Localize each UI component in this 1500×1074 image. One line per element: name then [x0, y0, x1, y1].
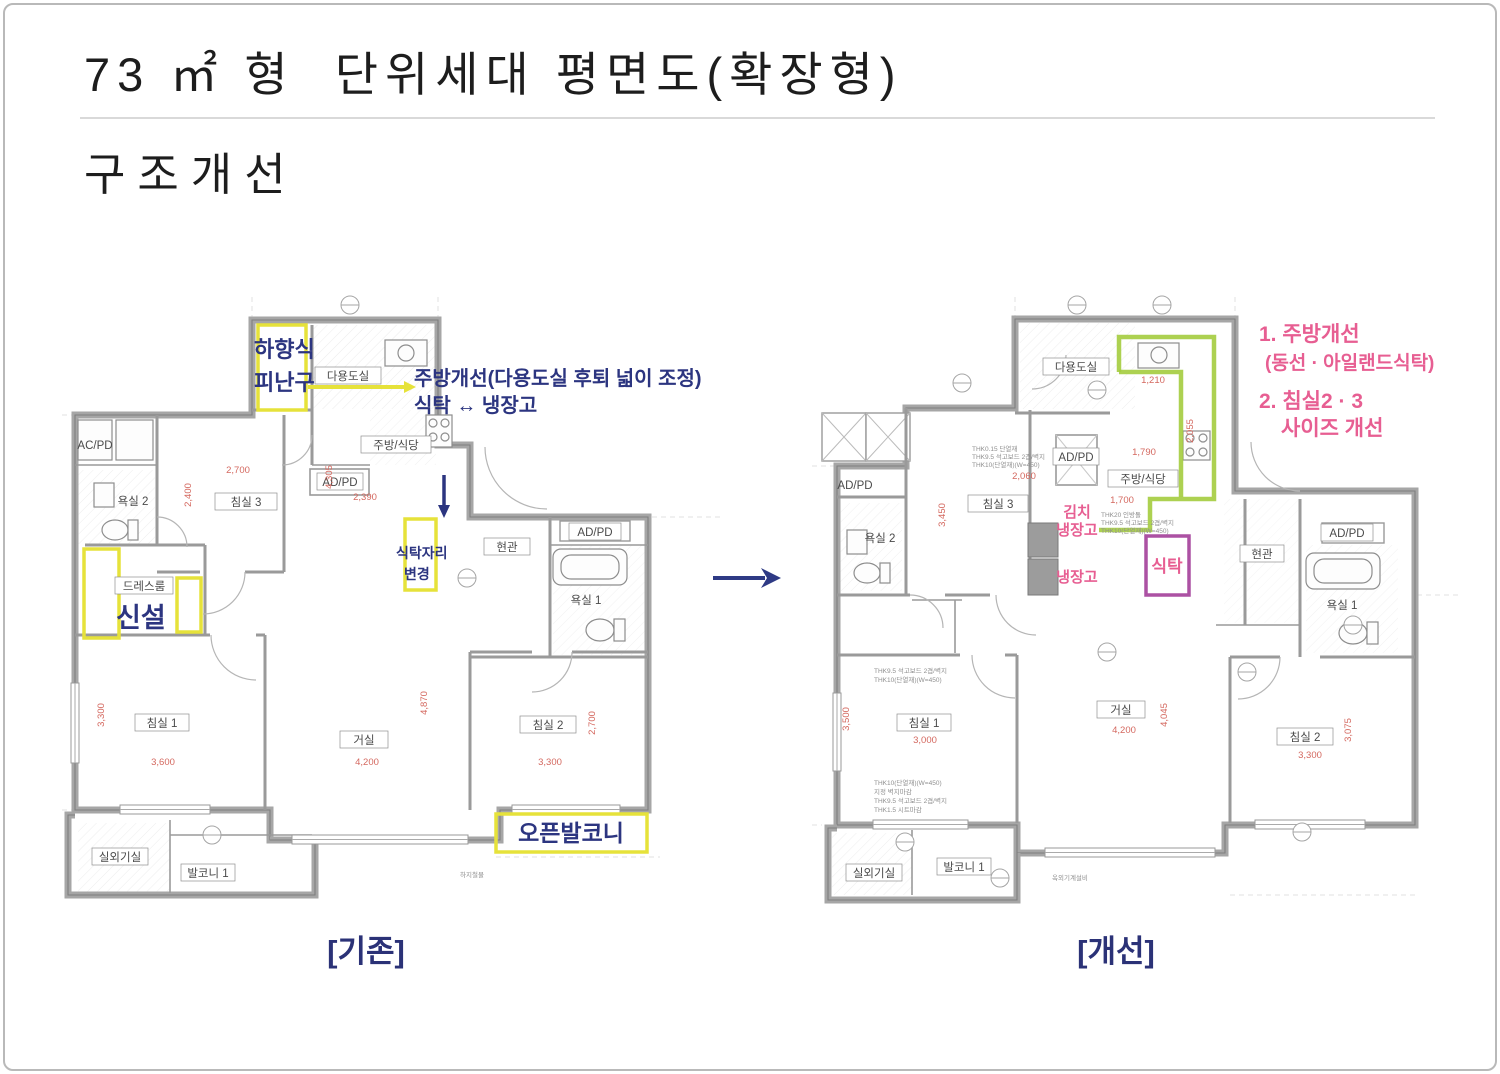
svg-text:욕실 2: 욕실 2 [865, 532, 896, 545]
dimension-label: 3,600 [151, 757, 175, 768]
circle-marker [953, 374, 971, 392]
dimension-label: 3,000 [913, 735, 937, 746]
svg-text:욕실 2: 욕실 2 [118, 495, 149, 508]
svg-text:침실 3: 침실 3 [231, 496, 262, 509]
room-label: 욕실 1 [1327, 599, 1358, 612]
circle-marker [896, 833, 914, 851]
circle-marker [1293, 823, 1311, 841]
label-fridge: 냉장고 [1056, 568, 1098, 586]
dimension-label: 2,060 [1012, 471, 1036, 482]
dimension-label: 3,300 [1298, 750, 1322, 761]
dimension-label: 1,700 [1110, 495, 1134, 506]
svg-text:AC/PD: AC/PD [77, 440, 112, 452]
svg-text:침실 1: 침실 1 [147, 717, 178, 730]
floor-plan-improved: 1. 주방개선 (동선 · 아일랜드식탁) 2. 침실2 · 3 사이즈 개선 … [810, 295, 1470, 920]
tiny-note: THK9.5 석고보드 2겹/벽지 [1101, 518, 1174, 527]
dimension-label: 3,075 [1343, 718, 1354, 742]
svg-text:욕실 1: 욕실 1 [571, 594, 602, 607]
room-label: 욕실 1 [571, 594, 602, 607]
tiny-note: THK0.15 단열재 [972, 444, 1017, 453]
svg-text:현관: 현관 [496, 541, 518, 554]
dimension-label: 4,045 [1159, 703, 1170, 727]
room-label: 발코니 1 [937, 858, 991, 875]
room-label: 현관 [484, 538, 530, 555]
tiny-note: 하지철물 [460, 870, 484, 879]
room-label: 침실 2 [1277, 728, 1333, 745]
svg-text:침실 2: 침실 2 [533, 719, 564, 732]
svg-text:현관: 현관 [1251, 548, 1273, 561]
svg-text:침실 3: 침실 3 [983, 498, 1014, 511]
annotation-1-title: 1. 주방개선 [1259, 323, 1360, 346]
dimension-label: 1,210 [1141, 375, 1165, 386]
annotation-escape-hatch-line2: 피난구 [254, 370, 315, 395]
circle-marker [458, 569, 476, 587]
room-label: 다용도실 [315, 367, 381, 384]
label-kimchi-fridge-line2: 냉장고 [1056, 521, 1098, 539]
annotation-new-install: 신설 [116, 603, 166, 633]
room-label: 거실 [340, 731, 388, 748]
svg-text:발코니 1: 발코니 1 [187, 867, 228, 880]
caption-improved: [개선] [1031, 926, 1201, 971]
room-label: 주방/식당 [1108, 470, 1178, 487]
annotation-table-move-line1: 식탁자리 [396, 545, 448, 561]
down-arrow-head [438, 505, 450, 518]
circle-marker [1068, 296, 1086, 314]
caption-existing: [기존] [281, 926, 451, 971]
dimension-label: 2,700 [587, 711, 598, 735]
svg-text:AD/PD: AD/PD [837, 480, 872, 492]
annotation-2-detail: 사이즈 개선 [1281, 417, 1383, 440]
label-dining-table: 식탁 [1151, 557, 1183, 576]
room-label: 욕실 2 [865, 532, 896, 545]
dimension-label: 3,450 [937, 503, 948, 527]
label-kimchi-fridge-line1: 김치 [1063, 503, 1091, 521]
dimension-label: 3,300 [96, 703, 107, 727]
circle-marker [203, 826, 221, 844]
svg-text:발코니 1: 발코니 1 [943, 861, 984, 874]
tiny-note: THK9.5 석고보드 2겹/벽지 [972, 452, 1045, 461]
circle-marker [1344, 616, 1362, 634]
annotation-table-fridge: 식탁 ↔ 냉장고 [414, 394, 537, 417]
slide: 73 ㎡ 형 단위세대 평면도(확장형) 구조개선 [0, 0, 1500, 1074]
room-label: 실외기실 [846, 864, 902, 881]
tiny-note: 옥외기계설비 [1052, 873, 1088, 882]
circle-marker [1088, 381, 1106, 399]
tiny-note: THK10(단열재)(W=450) [1101, 526, 1169, 535]
elevator-core [822, 413, 910, 461]
annotation-kitchen-improve: 주방개선(다용도실 후퇴 넓이 조정) [414, 367, 702, 390]
kimchi-fridge-unit [1028, 523, 1058, 557]
title-divider [80, 117, 1435, 119]
room-label: 침실 1 [897, 714, 951, 731]
room-label: AD/PD [837, 480, 872, 492]
circle-marker [1098, 643, 1116, 661]
dimension-label: 1,790 [1132, 447, 1156, 458]
tiny-note: THK10(단열재)(W=450) [874, 675, 942, 684]
fridge-unit [1028, 559, 1058, 595]
svg-text:욕실 1: 욕실 1 [1327, 599, 1358, 612]
annotation-open-balcony: 오픈발코니 [518, 820, 624, 846]
room-label: 현관 [1240, 545, 1284, 562]
room-label: 침실 1 [135, 714, 189, 731]
svg-text:드레스룸: 드레스룸 [123, 580, 165, 593]
room-label: 거실 [1097, 701, 1145, 718]
svg-text:실외기실: 실외기실 [853, 867, 895, 880]
floor-plan-existing: 하향식 피난구 주방개선(다용도실 후퇴 넓이 조정) 식탁 ↔ 냉장고 신설 … [60, 295, 780, 920]
svg-text:다용도실: 다용도실 [327, 370, 369, 383]
circle-marker [1153, 296, 1171, 314]
dimension-label: 2,700 [226, 465, 250, 476]
tiny-note: THK9.5 석고보드 2겹/벽지 [874, 796, 947, 805]
room-label: 다용도실 [1043, 358, 1109, 375]
room-label: 욕실 2 [118, 495, 149, 508]
tiny-note: THK10(단열재)(W=450) [972, 460, 1040, 469]
room-label: 주방/식당 [361, 436, 431, 453]
room-label: AC/PD [77, 440, 112, 452]
room-label: 침실 3 [968, 495, 1028, 512]
svg-text:AD/PD: AD/PD [1058, 452, 1093, 464]
dimension-label: 4,200 [355, 757, 379, 768]
circle-marker [991, 869, 1009, 887]
svg-text:주방/식당: 주방/식당 [373, 439, 419, 452]
room-label: AD/PD [569, 523, 621, 540]
tiny-notes: 하지철물 [460, 870, 484, 879]
svg-text:실외기실: 실외기실 [99, 851, 141, 864]
dimension-label: 2,055 [1185, 419, 1196, 443]
page-title: 73 ㎡ 형 단위세대 평면도(확장형) [84, 36, 903, 105]
dimension-label: 4,870 [419, 691, 430, 715]
dimension-label: 2,400 [183, 483, 194, 507]
svg-text:침실 1: 침실 1 [909, 717, 940, 730]
dimension-label: 3,500 [841, 707, 852, 731]
room-label: 침실 3 [215, 493, 277, 510]
tiny-note: THK20 인방돌 [1101, 510, 1141, 519]
room-label: 침실 2 [520, 716, 576, 733]
room-label: 드레스룸 [115, 577, 173, 594]
svg-text:거실: 거실 [353, 734, 374, 747]
tiny-note: THK10(단열재)(W=450) [874, 778, 942, 787]
dimension-label: 4,305 [324, 465, 335, 489]
circle-marker [341, 296, 359, 314]
svg-text:침실 2: 침실 2 [1290, 731, 1321, 744]
svg-text:거실: 거실 [1110, 704, 1131, 717]
svg-text:다용도실: 다용도실 [1055, 361, 1097, 374]
annotation-table-move-line2: 변경 [404, 566, 430, 582]
annotation-escape-hatch-line1: 하향식 [254, 337, 315, 362]
transition-arrow [703, 556, 793, 601]
page-subtitle: 구조개선 [84, 138, 298, 203]
room-label: 발코니 1 [181, 864, 235, 881]
tiny-note: THK9.5 석고보드 2겹/벽지 [874, 666, 947, 675]
tiny-note: THK1.5 시트마감 [874, 805, 922, 814]
svg-text:주방/식당: 주방/식당 [1120, 473, 1166, 486]
annotation-2-title: 2. 침실2 · 3 [1259, 390, 1363, 413]
circle-marker [1238, 663, 1256, 681]
tiny-note: 지정 벽지마감 [874, 787, 912, 796]
room-label: 실외기실 [92, 848, 148, 865]
room-label: AD/PD [1321, 524, 1373, 541]
dimension-label: 3,300 [538, 757, 562, 768]
svg-text:AD/PD: AD/PD [1329, 528, 1364, 540]
svg-text:AD/PD: AD/PD [577, 527, 612, 539]
dimension-label: 4,200 [1112, 725, 1136, 736]
annotation-1-detail: (동선 · 아일랜드식탁) [1265, 352, 1434, 374]
dimension-label: 2,390 [353, 492, 377, 503]
room-label: AD/PD [1053, 448, 1099, 465]
